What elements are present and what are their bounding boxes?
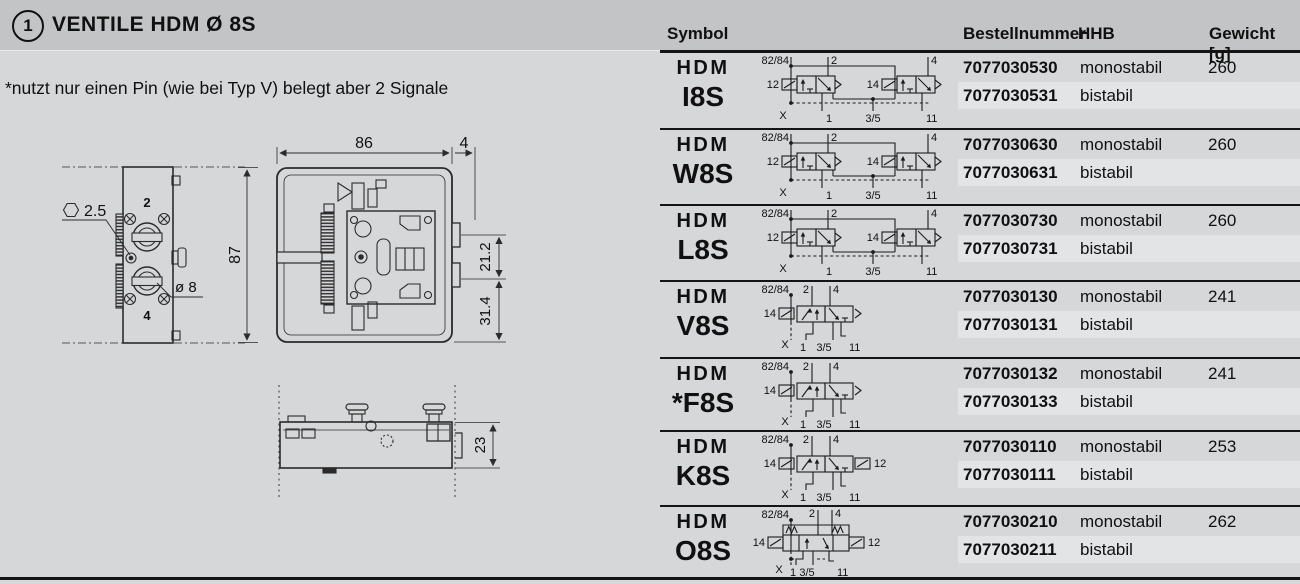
section-number-badge: 1: [12, 10, 44, 42]
valve-schematic: 82/84241412X13/511: [745, 507, 959, 581]
col-header-hhb: HHB: [1078, 24, 1115, 44]
svg-text:14: 14: [764, 308, 776, 320]
svg-text:3/5: 3/5: [816, 342, 831, 354]
svg-text:11: 11: [926, 113, 937, 125]
svg-text:11: 11: [926, 190, 937, 202]
svg-text:X: X: [781, 339, 789, 351]
svg-text:X: X: [781, 416, 789, 428]
dim-23: 23: [472, 437, 489, 454]
svg-text:14: 14: [867, 156, 879, 168]
hhb-value: monostabil: [1080, 437, 1162, 457]
weight-value: 241: [1208, 364, 1236, 384]
table-row-f8s: HDM *F8S 82/842414X13/511 7077030132 mon…: [660, 357, 1300, 430]
hhb-value: bistabil: [1080, 540, 1133, 560]
brand-logo: HDM: [660, 286, 746, 309]
push-button-icon: [423, 404, 445, 422]
table-row-o8s: HDM O8S 82/84241412X13/511 7077030210 mo…: [660, 505, 1300, 584]
port-label-4: 4: [143, 308, 151, 323]
svg-text:12: 12: [767, 156, 779, 168]
svg-text:X: X: [775, 564, 783, 576]
svg-text:2: 2: [803, 361, 809, 373]
col-header-bestellnummer: Bestellnummer: [963, 24, 1086, 44]
svg-text:X: X: [779, 187, 787, 199]
svg-text:3/5: 3/5: [865, 190, 880, 202]
svg-text:1: 1: [826, 190, 832, 202]
svg-text:82/84: 82/84: [761, 361, 789, 373]
hhb-value: bistabil: [1080, 239, 1133, 259]
valve-schematic: 82/842414X13/511: [745, 282, 959, 356]
svg-text:X: X: [779, 110, 787, 122]
svg-text:82/84: 82/84: [761, 509, 789, 521]
col-header-symbol: Symbol: [667, 24, 728, 44]
svg-text:2: 2: [831, 132, 837, 144]
brand-logo: HDM: [660, 134, 746, 157]
svg-text:4: 4: [833, 434, 839, 446]
brand-logo: HDM: [660, 436, 746, 459]
order-number: 7077030631: [963, 163, 1058, 183]
weight-value: 262: [1208, 512, 1236, 532]
table-row-w8s: HDM W8S 82/842124143/5111X 7077030630 mo…: [660, 128, 1300, 204]
svg-text:2: 2: [831, 208, 837, 220]
svg-text:4: 4: [835, 508, 841, 520]
valve-model: V8S: [660, 310, 746, 342]
hhb-value: monostabil: [1080, 135, 1162, 155]
dim-31-4: 31.4: [477, 296, 494, 325]
front-view: [277, 147, 506, 342]
order-number: 7077030110: [963, 437, 1057, 457]
svg-text:1: 1: [826, 113, 832, 125]
svg-text:2: 2: [809, 508, 815, 520]
hhb-value: monostabil: [1080, 211, 1162, 231]
valve-schematic: 82/842124143/5111X: [745, 53, 959, 127]
table-row-l8s: HDM L8S 82/842124143/5111X 7077030730 mo…: [660, 204, 1300, 280]
order-number: 7077030130: [963, 287, 1058, 307]
bottom-rule: [0, 577, 1300, 580]
hhb-value: bistabil: [1080, 315, 1133, 335]
weight-value: 260: [1208, 58, 1236, 78]
page-header-band: 1 VENTILE HDM Ø 8S Symbol Bestellnummer …: [0, 0, 1300, 51]
svg-text:2: 2: [803, 284, 809, 296]
hhb-value: monostabil: [1080, 287, 1162, 307]
svg-text:12: 12: [874, 458, 886, 470]
svg-text:14: 14: [764, 458, 776, 470]
svg-text:11: 11: [849, 492, 860, 504]
weight-value: 253: [1208, 437, 1236, 457]
valve-table: HDM I8S 82/842124143/5111X 7077030530 mo…: [660, 50, 1300, 583]
valve-schematic: 82/842124143/5111X: [745, 130, 959, 204]
page-title: VENTILE HDM Ø 8S: [52, 13, 256, 37]
dim-port-dia: ø 8: [175, 279, 197, 296]
svg-text:14: 14: [867, 232, 879, 244]
order-number: 7077030210: [963, 512, 1058, 532]
hhb-value: bistabil: [1080, 86, 1133, 106]
svg-text:82/84: 82/84: [761, 132, 789, 144]
hhb-value: monostabil: [1080, 58, 1162, 78]
svg-text:82/84: 82/84: [761, 208, 789, 220]
svg-text:14: 14: [753, 537, 765, 549]
svg-text:14: 14: [764, 385, 776, 397]
order-number: 7077030131: [963, 315, 1058, 335]
valve-model: K8S: [660, 460, 746, 492]
dim-21-2: 21.2: [477, 242, 494, 271]
svg-text:82/84: 82/84: [761, 284, 789, 296]
push-button-icon: [346, 404, 368, 422]
weight-value: 241: [1208, 287, 1236, 307]
svg-text:12: 12: [767, 79, 779, 91]
svg-text:11: 11: [926, 266, 937, 278]
dim-86: 86: [355, 135, 373, 152]
table-row-i8s: HDM I8S 82/842124143/5111X 7077030530 mo…: [660, 53, 1300, 128]
svg-text:12: 12: [767, 232, 779, 244]
valve-schematic: 82/842124143/5111X: [745, 206, 959, 280]
brand-logo: HDM: [660, 511, 746, 534]
svg-text:4: 4: [931, 55, 937, 67]
weight-value: 260: [1208, 211, 1236, 231]
table-row-k8s: HDM K8S 82/84241412X13/511 7077030110 mo…: [660, 430, 1300, 505]
hhb-value: bistabil: [1080, 392, 1133, 412]
svg-text:1: 1: [800, 492, 806, 504]
order-number: 7077030531: [963, 86, 1058, 106]
brand-logo: HDM: [660, 210, 746, 233]
order-number: 7077030630: [963, 135, 1058, 155]
port-label-2: 2: [143, 195, 150, 210]
svg-text:12: 12: [868, 537, 880, 549]
order-number: 7077030530: [963, 58, 1058, 78]
valve-model: L8S: [660, 234, 746, 266]
dim-4: 4: [460, 135, 469, 152]
svg-text:X: X: [779, 263, 787, 275]
svg-text:3/5: 3/5: [816, 492, 831, 504]
svg-text:1: 1: [826, 266, 832, 278]
svg-text:2: 2: [803, 434, 809, 446]
hhb-value: monostabil: [1080, 512, 1162, 532]
svg-text:14: 14: [867, 79, 879, 91]
hex-socket-icon: [64, 204, 79, 217]
valve-model: W8S: [660, 158, 746, 190]
hhb-value: bistabil: [1080, 465, 1133, 485]
valve-schematic: 82/842414X13/511: [745, 359, 959, 433]
svg-text:X: X: [781, 489, 789, 501]
technical-drawing: 2 4 2.5 ø 8 87 86 4 21.2 31.4 23: [0, 52, 660, 583]
valve-model: O8S: [660, 535, 746, 567]
order-number: 7077030731: [963, 239, 1058, 259]
dim-hex: 2.5: [84, 203, 106, 220]
svg-text:1: 1: [800, 342, 806, 354]
order-number: 7077030111: [963, 465, 1056, 485]
order-number: 7077030211: [963, 540, 1057, 560]
svg-text:82/84: 82/84: [761, 434, 789, 446]
brand-logo: HDM: [660, 363, 746, 386]
valve-model: *F8S: [660, 387, 746, 419]
order-number: 7077030133: [963, 392, 1058, 412]
valve-model: I8S: [660, 81, 746, 113]
svg-text:4: 4: [931, 208, 937, 220]
svg-text:2: 2: [831, 55, 837, 67]
weight-value: 260: [1208, 135, 1236, 155]
brand-logo: HDM: [660, 57, 746, 80]
svg-text:11: 11: [849, 342, 860, 354]
order-number: 7077030132: [963, 364, 1058, 384]
hhb-value: bistabil: [1080, 163, 1133, 183]
svg-text:3/5: 3/5: [865, 266, 880, 278]
bottom-view: [279, 385, 500, 500]
valve-schematic: 82/84241412X13/511: [745, 432, 959, 506]
svg-text:4: 4: [931, 132, 937, 144]
svg-text:4: 4: [833, 361, 839, 373]
table-row-v8s: HDM V8S 82/842414X13/511 7077030130 mono…: [660, 280, 1300, 357]
order-number: 7077030730: [963, 211, 1058, 231]
svg-text:3/5: 3/5: [865, 113, 880, 125]
svg-text:4: 4: [833, 284, 839, 296]
svg-text:82/84: 82/84: [761, 55, 789, 67]
dim-87: 87: [227, 246, 244, 264]
hhb-value: monostabil: [1080, 364, 1162, 384]
